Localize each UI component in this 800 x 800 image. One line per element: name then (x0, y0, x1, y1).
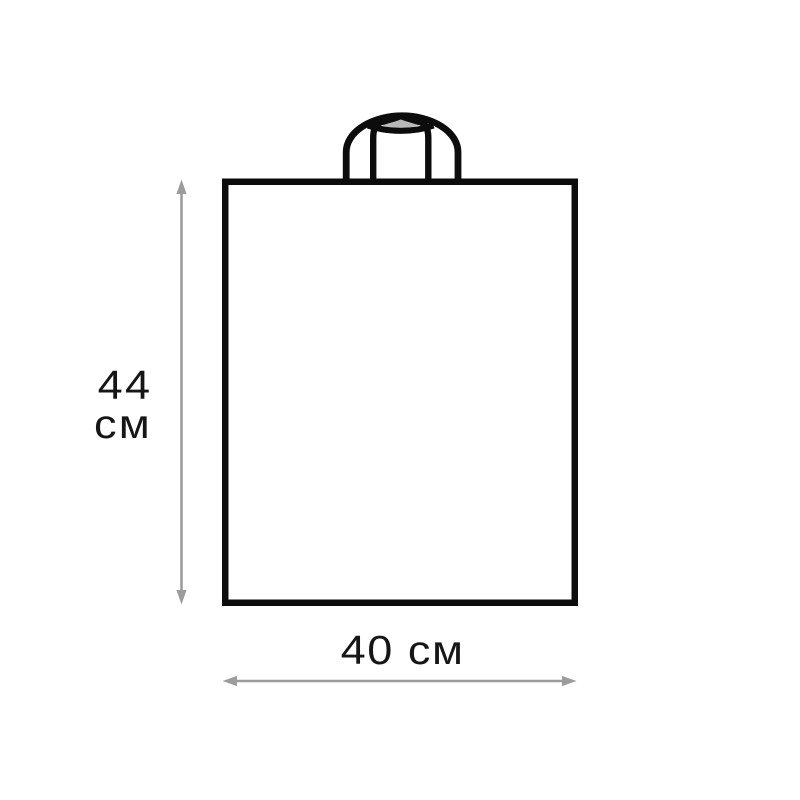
svg-text:40 см: 40 см (341, 628, 465, 674)
svg-text:см: см (94, 402, 152, 448)
